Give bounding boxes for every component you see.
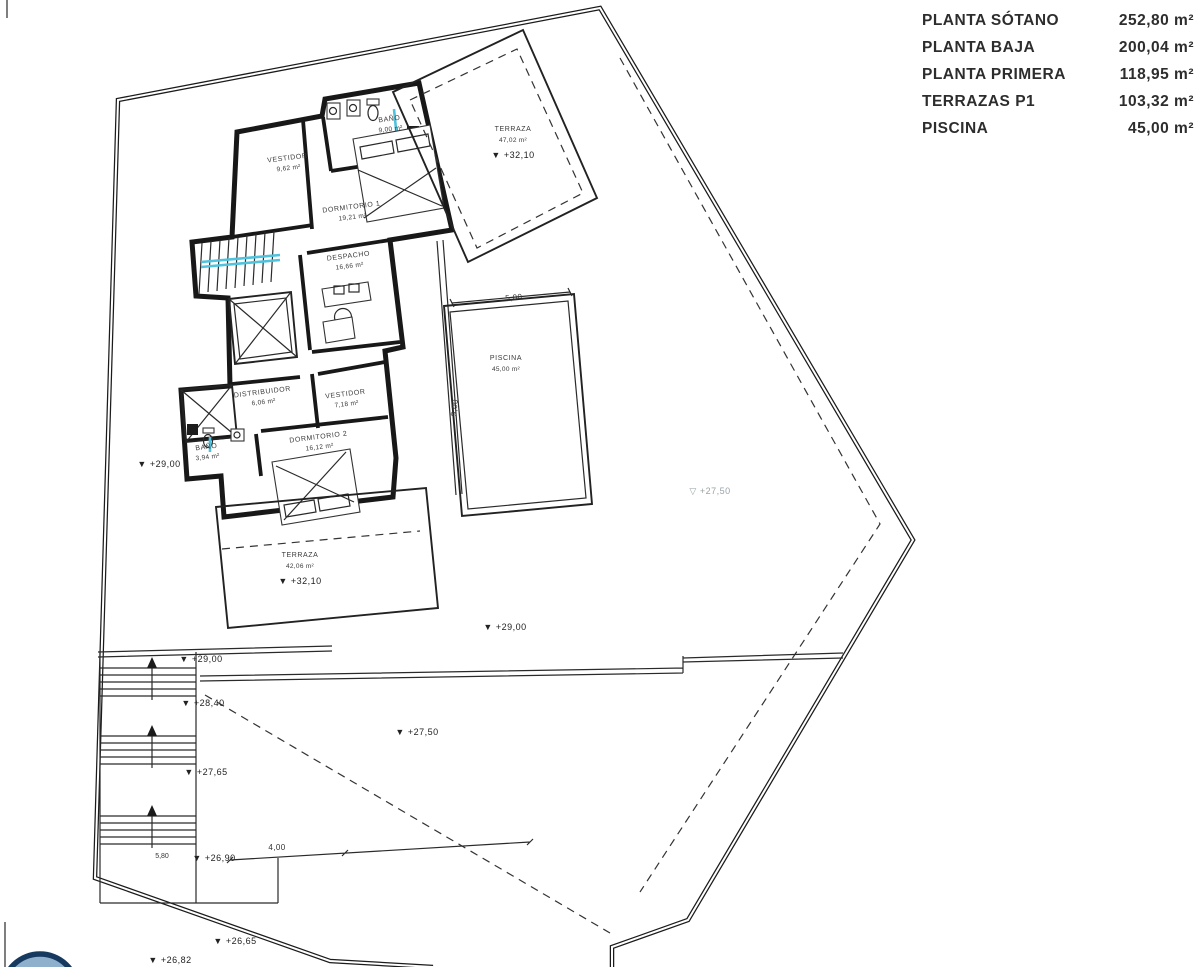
room-area: 42,06 m² — [286, 563, 315, 570]
legend-value: 118,95 m² — [1120, 66, 1194, 84]
dimension-label: 5,80 — [155, 853, 169, 860]
level-marker: ▽ +27,50 — [689, 486, 730, 496]
legend-label: PLANTA PRIMERA — [922, 66, 1066, 84]
legend-row: TERRAZAS P1 103,32 m² — [922, 93, 1194, 111]
legend-label: PLANTA BAJA — [922, 39, 1035, 57]
room-name: TERRAZA — [282, 552, 319, 559]
room-area: 47,02 m² — [499, 137, 528, 144]
legend-label: PLANTA SÓTANO — [922, 12, 1059, 30]
level-marker: ▼ +32,10 — [278, 576, 321, 586]
shower-tray — [187, 424, 198, 435]
level-marker: ▼ +27,65 — [184, 767, 227, 777]
room-area: 45,00 m² — [492, 366, 521, 373]
legend-row: PLANTA SÓTANO 252,80 m² — [922, 12, 1194, 30]
legend-value: 252,80 m² — [1119, 12, 1194, 30]
level-marker: ▼ +26,65 — [213, 936, 256, 946]
exterior-stairs — [100, 652, 278, 903]
level-marker: ▼ +32,10 — [491, 150, 534, 160]
stair-direction-arrow — [147, 657, 157, 848]
legend-value: 200,04 m² — [1119, 39, 1194, 57]
level-marker: ▼ +29,00 — [179, 654, 222, 664]
level-marker: ▼ +28,40 — [181, 698, 224, 708]
pool: PISCINA 45,00 m² 5,00 9,00 — [444, 288, 592, 516]
sheet-edge-marks — [5, 0, 7, 967]
area-legend: PLANTA SÓTANO 252,80 m² PLANTA BAJA 200,… — [922, 12, 1194, 147]
level-marker: ▼ +27,50 — [395, 727, 438, 737]
legend-row: PISCINA 45,00 m² — [922, 120, 1194, 138]
level-marker: ▼ +29,00 — [483, 622, 526, 632]
stair-treads — [100, 668, 196, 844]
dimension-label: 4,00 — [268, 843, 285, 852]
legend-row: PLANTA PRIMERA 118,95 m² — [922, 66, 1194, 84]
room-name: TERRAZA — [495, 126, 532, 133]
svg-text:5,00: 5,00 — [505, 292, 523, 302]
legend-value: 45,00 m² — [1128, 120, 1194, 138]
legend-value: 103,32 m² — [1119, 93, 1194, 111]
legend-row: PLANTA BAJA 200,04 m² — [922, 39, 1194, 57]
bed-dormitorio2 — [272, 449, 360, 525]
level-marker: ▼ +26,82 — [148, 955, 191, 965]
floor-plan-page: TERRAZA 47,02 m² ▼ +32,10 TERRAZA 42,06 … — [0, 0, 1200, 967]
svg-text:9,00: 9,00 — [449, 399, 460, 417]
pool-length-dimension: 9,00 — [449, 399, 460, 417]
legend-label: PISCINA — [922, 120, 988, 138]
level-marker: ▼ +29,00 — [137, 459, 180, 469]
legend-label: TERRAZAS P1 — [922, 93, 1035, 111]
logo-mark — [3, 954, 77, 967]
house — [181, 83, 452, 525]
room-name: PISCINA — [490, 355, 522, 362]
